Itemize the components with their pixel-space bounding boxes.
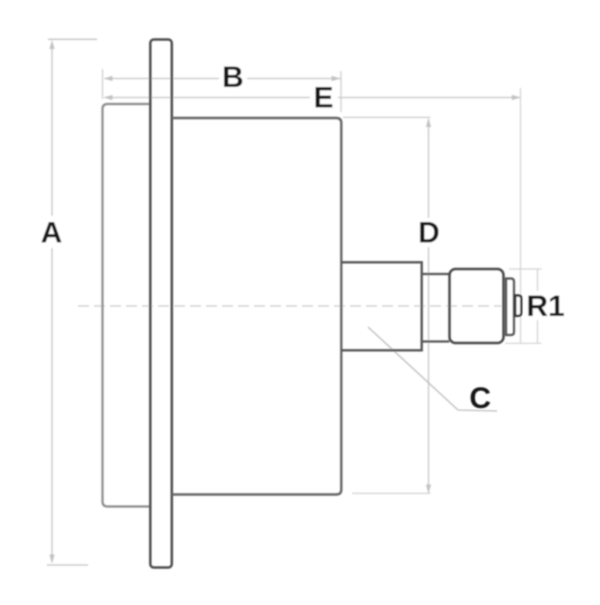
svg-text:E: E [313,82,333,115]
svg-text:R1: R1 [526,290,564,323]
svg-text:C: C [469,382,491,415]
svg-text:A: A [41,217,63,250]
svg-text:D: D [418,217,440,250]
svg-text:B: B [222,61,244,94]
